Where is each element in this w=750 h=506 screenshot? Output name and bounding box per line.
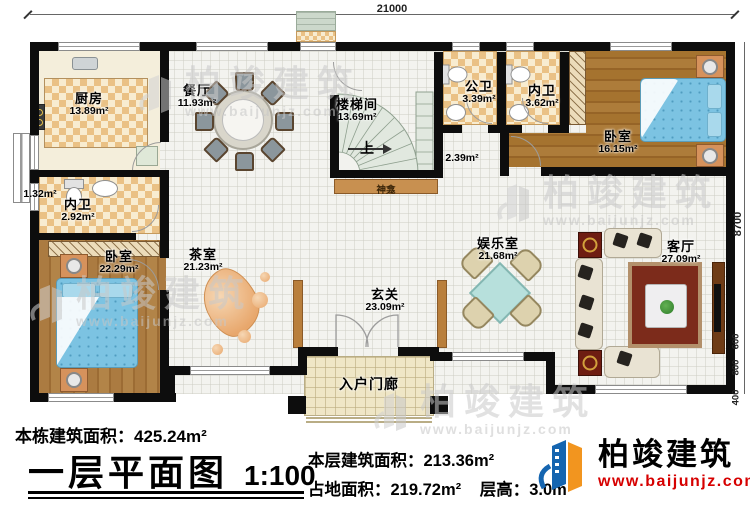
shrine-shelf: 神龛 [334,179,438,194]
right-dim-400: 400 [730,390,741,406]
plan-scale: 1:100 [244,460,316,492]
right-dimension-label: 8700 [732,212,744,236]
canopy-tiles [296,31,336,42]
window [196,42,268,51]
closet-hatch-right [569,51,586,125]
pillar [293,280,303,348]
wall [30,233,136,240]
porch-pier [430,396,448,414]
room-label-game: 娱乐室 21.68m² [477,237,519,263]
room-label-stairwell: 楼梯间 13.69m² [336,98,378,124]
brand-logo-icon [534,436,590,496]
dining-table-top [222,99,264,141]
title-underline-2 [28,497,304,499]
shrine-label: 神龛 [376,185,395,196]
room-label-foyer: 玄关 23.09m² [365,288,404,314]
window [610,42,672,51]
pillar [437,280,447,348]
floor-plan-page: 21000 8700 600 800 400 [0,0,750,506]
floor-area-label: 本层建筑面积： [308,452,424,470]
wall [541,167,735,176]
wall [330,170,443,178]
sink-icon [446,104,466,121]
page-title: 一层平面图 [28,444,228,496]
nightstand [696,55,724,78]
bed-double [56,278,138,368]
stair-up-label: 上 [360,138,374,158]
coffee-table [645,284,687,328]
window [506,42,534,51]
wall [160,290,169,393]
toilet-icon [503,67,530,85]
room-label-ensuite-left: 内卫 2.92m² [61,198,94,224]
wall [488,125,506,133]
nightstand [696,144,724,167]
area-label-closet: 1.32m² [23,188,56,200]
right-dim-800: 800 [730,360,741,376]
porch-pier [288,396,306,414]
wall [30,170,169,177]
window [30,135,39,170]
armchair [604,346,660,378]
window [190,366,270,375]
footprint-value: 219.72m² [391,481,462,499]
sink-icon [92,180,118,197]
room-label-bedroom-right: 卧室 16.15m² [598,130,637,156]
wall [434,125,462,133]
wall [506,125,522,133]
porch-step [306,417,432,419]
window [452,352,524,361]
nightstand [60,254,88,278]
nightstand [60,368,88,392]
room-label-ensuite-top: 内卫 3.62m² [525,84,558,110]
porch-step [306,421,432,423]
window [300,42,336,51]
plan-title-row: 一层平面图 1:100 [28,444,316,496]
brand-block: 柏竣建筑 www.baijunjz.com [534,436,750,496]
wall [298,347,338,356]
wall [497,52,506,133]
room-label-tea: 茶室 21.23m² [183,248,222,274]
window [58,42,140,51]
room-label-dining: 餐厅 11.93m² [178,84,217,110]
kitchen-sink-icon [72,57,98,70]
floor-area-line: 本层建筑面积：213.36m² [308,447,494,471]
footprint-label: 占地面积： [308,481,391,499]
plant-icon [660,300,674,314]
right-dim-600: 600 [730,334,741,350]
brand-name: 柏竣建筑 [598,436,750,473]
chair-icon [195,112,214,131]
floor-area-value: 213.36m² [424,452,495,470]
wall [30,42,39,402]
room-label-kitchen: 厨房 13.89m² [69,92,108,118]
pebble [252,292,268,308]
end-table [578,232,602,258]
area-label-hall: 2.39m² [445,152,478,164]
bed-double [640,78,726,142]
chair-icon [275,112,294,131]
brand-text: 柏竣建筑 www.baijunjz.com [598,436,750,491]
tv-icon [714,284,721,332]
canopy [296,11,336,31]
footprint-line: 占地面积：219.72m² 层高：3.0m [308,476,567,500]
room-label-porch: 入户门廊 [339,377,399,392]
room-label-bedroom-left: 卧室 22.29m² [99,250,138,276]
wall [434,52,443,178]
up-arrow-icon [383,144,392,154]
brand-url: www.baijunjz.com [598,473,750,491]
room-label-living: 客厅 27.09m² [661,240,700,266]
top-dimension-label: 21000 [377,3,408,15]
wall [500,133,509,167]
end-table [578,350,602,376]
pebble [238,330,251,343]
wall [160,42,169,142]
window [595,385,687,394]
window [48,393,114,402]
window [452,42,480,51]
chair-icon [235,152,254,171]
height-label: 层高： [480,481,530,499]
room-label-public-bath: 公卫 3.39m² [462,80,495,106]
pebble [260,272,270,282]
wall [500,167,509,176]
pebble [212,344,223,355]
title-underline [28,491,304,494]
wall [548,125,569,133]
chair-icon [235,72,254,91]
wall [160,170,169,258]
wall [560,52,569,133]
